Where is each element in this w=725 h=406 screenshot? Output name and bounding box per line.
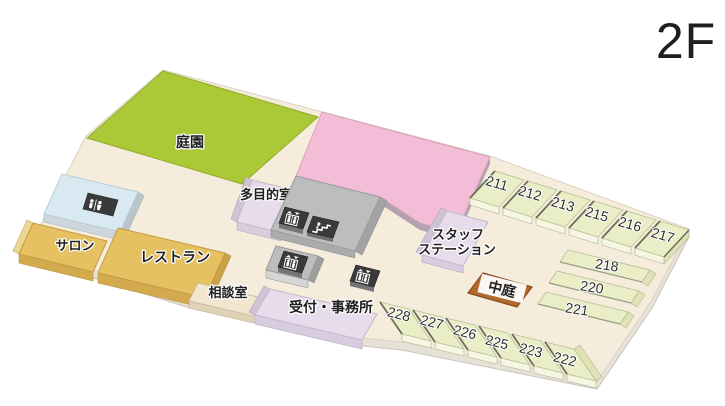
restaurant-label: レストラン — [140, 249, 210, 265]
floor-plan-2f: 庭園 211 212 213 — [0, 0, 725, 406]
floor-plan-page: 庭園 211 212 213 — [0, 0, 725, 406]
multipurpose-label: 多目的室 — [240, 187, 292, 202]
garden-label: 庭園 — [176, 134, 204, 150]
salon-label: サロン — [55, 238, 94, 253]
staff-station-label-line2: ステーション — [418, 242, 496, 257]
consultation-label: 相談室 — [208, 285, 247, 300]
floor-indicator: 2F — [656, 13, 716, 69]
staff-station-label-line1: スタッフ — [432, 227, 484, 242]
reception-label: 受付・事務所 — [289, 299, 373, 315]
